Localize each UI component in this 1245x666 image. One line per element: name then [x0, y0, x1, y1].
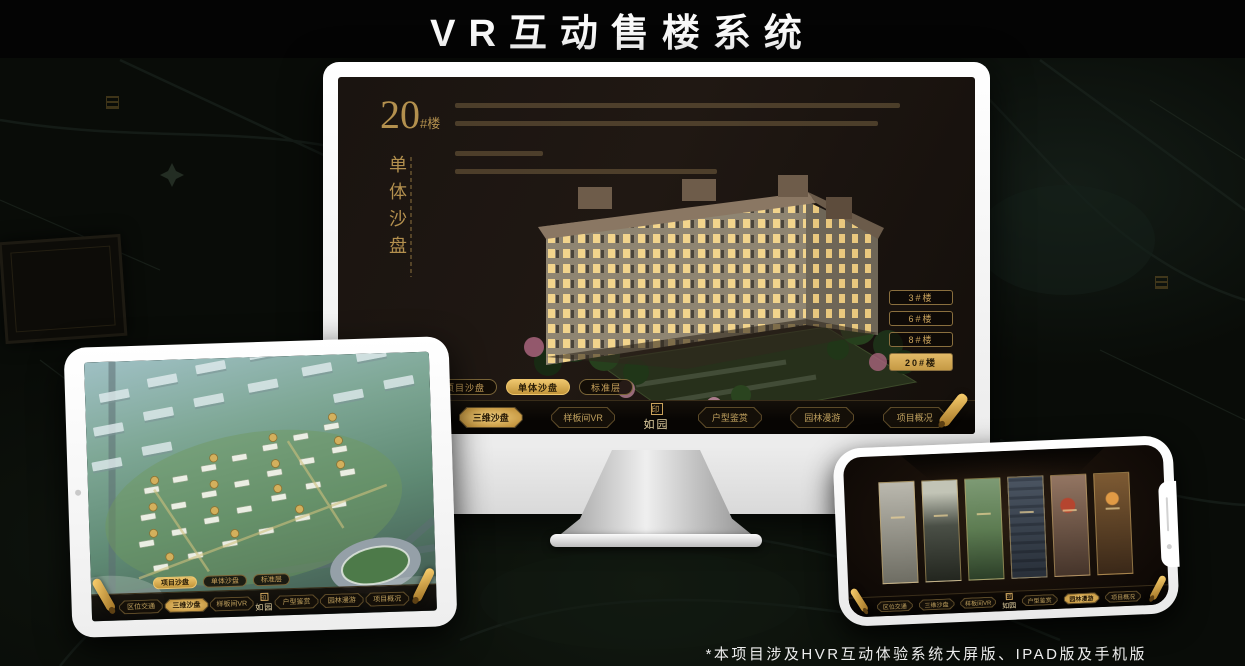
- nav-item-showroom-vr[interactable]: 样板间VR: [210, 596, 254, 611]
- gallery-panel[interactable]: [1093, 472, 1133, 575]
- tablet-device: 项目沙盘 单体沙盘 标准层 区位交通 三维沙盘 样板间VR 印 如园 户型鉴赏 …: [64, 336, 458, 638]
- tab-standard-floor[interactable]: 标准层: [253, 573, 290, 586]
- block-heading: 20#楼: [380, 95, 440, 135]
- phone-navbar: 区位交通 三维沙盘 样板间VR 印 如园 户型鉴赏 园林漫游 项目概况: [849, 584, 1170, 617]
- footnote: *本项目涉及HVR互动体验系统大屏版、IPAD版及手机版: [706, 643, 1147, 664]
- nav-item-showroom-vr[interactable]: 样板间VR: [960, 596, 996, 608]
- nav-item-location[interactable]: 区位交通: [119, 599, 163, 614]
- nav-item-location[interactable]: 区位交通: [877, 600, 913, 612]
- page-title: VR互动售楼系统: [430, 2, 815, 57]
- tab-project-sandbox[interactable]: 项目沙盘: [153, 576, 197, 589]
- brand-logo-text: 如园: [644, 416, 670, 432]
- phone-device: 区位交通 三维沙盘 样板间VR 印 如园 户型鉴赏 园林漫游 项目概况: [832, 435, 1179, 627]
- brand-logo: 印 如园: [255, 593, 274, 614]
- gallery-panel[interactable]: [1007, 475, 1047, 578]
- tablet-screen: 项目沙盘 单体沙盘 标准层 区位交通 三维沙盘 样板间VR 印 如园 户型鉴赏 …: [84, 352, 437, 622]
- nav-item-floorplans[interactable]: 户型鉴赏: [1021, 594, 1057, 606]
- brand-logo: 印 如园: [1002, 592, 1017, 611]
- panorama-gallery: [878, 472, 1133, 584]
- gallery-panel[interactable]: [878, 481, 918, 584]
- brand-seal-icon: 印: [651, 403, 663, 415]
- monitor-subtabs: 项目沙盘 单体沙盘 标准层: [433, 379, 633, 395]
- nav-item-overview[interactable]: 项目概况: [365, 591, 409, 606]
- floor-button-6[interactable]: 6#楼: [889, 311, 953, 326]
- phone-screen: 区位交通 三维沙盘 样板间VR 印 如园 户型鉴赏 园林漫游 项目概况: [843, 444, 1169, 617]
- phone-speaker-icon: [1166, 497, 1169, 531]
- description-line: [455, 121, 878, 126]
- description-line: [455, 151, 543, 156]
- nav-item-garden-roam[interactable]: 园林漫游: [320, 593, 364, 608]
- wall-plaque: [0, 234, 127, 344]
- floor-button-8[interactable]: 8#楼: [889, 332, 953, 347]
- tab-single-sandbox[interactable]: 单体沙盘: [506, 379, 570, 395]
- nav-item-garden-roam[interactable]: 园林漫游: [1063, 592, 1099, 604]
- phone-notch: [1158, 481, 1180, 568]
- nav-item-showroom-vr[interactable]: 样板间VR: [551, 407, 615, 428]
- nav-item-3d-sandbox[interactable]: 三维沙盘: [164, 598, 208, 613]
- nav-item-floorplans[interactable]: 户型鉴赏: [274, 594, 318, 609]
- gallery-panel[interactable]: [921, 479, 961, 582]
- brand-logo-text: 如园: [255, 602, 273, 614]
- nav-item-3d-sandbox[interactable]: 三维沙盘: [918, 598, 954, 610]
- floor-button-3[interactable]: 3#楼: [889, 290, 953, 305]
- tab-single-sandbox[interactable]: 单体沙盘: [203, 574, 247, 587]
- monitor-base: [550, 534, 762, 547]
- map-marker-icon: [106, 96, 119, 109]
- tablet-camera-icon: [75, 490, 81, 496]
- block-suffix: #楼: [420, 116, 440, 131]
- nav-item-3d-sandbox[interactable]: 三维沙盘: [459, 407, 523, 428]
- header: VR互动售楼系统: [0, 0, 1245, 58]
- nav-item-garden-roam[interactable]: 园林漫游: [790, 407, 854, 428]
- gallery-panel[interactable]: [1050, 474, 1090, 577]
- brand-logo-text: 如园: [1002, 600, 1016, 611]
- nav-item-floorplans[interactable]: 户型鉴赏: [698, 407, 762, 428]
- brand-logo: 印 如园: [644, 403, 670, 432]
- block-number: 20: [380, 92, 420, 137]
- brand-seal-icon: 印: [1005, 592, 1012, 599]
- phone-camera-icon: [1167, 544, 1172, 549]
- brand-seal-icon: 印: [260, 593, 268, 601]
- map-marker-icon: [1155, 276, 1168, 289]
- nav-item-overview[interactable]: 项目概况: [1105, 590, 1141, 602]
- tab-standard-floor[interactable]: 标准层: [579, 379, 633, 395]
- block-divider: [410, 157, 412, 277]
- floor-button-20[interactable]: 20#楼: [889, 353, 953, 371]
- description-line: [455, 103, 900, 108]
- block-name-vertical: 单体沙盘: [384, 155, 410, 263]
- gallery-panel[interactable]: [964, 477, 1004, 580]
